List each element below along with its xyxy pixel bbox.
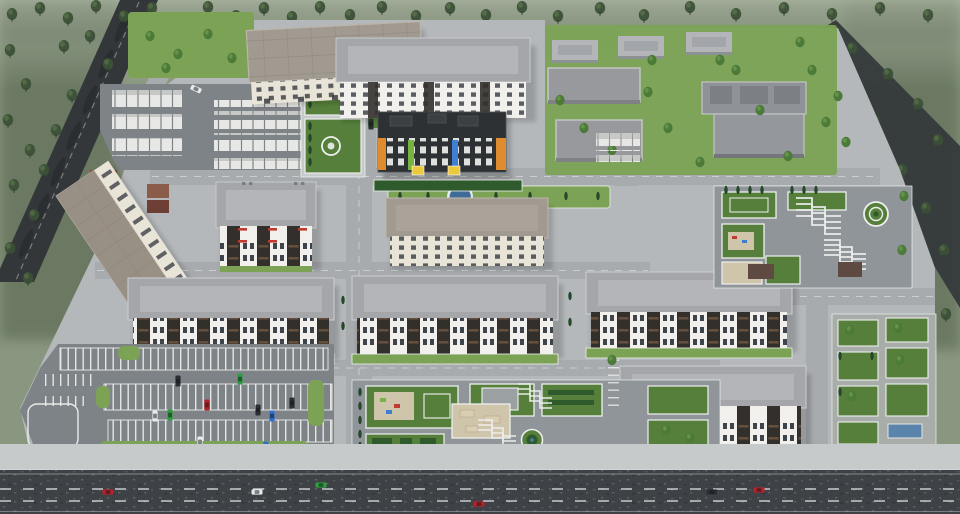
car-dark xyxy=(707,489,718,494)
building-block-e xyxy=(216,182,321,272)
car-green xyxy=(316,482,327,487)
car-dark xyxy=(289,398,294,409)
nw-lawn xyxy=(128,12,254,78)
school-main-building xyxy=(702,82,806,158)
school-campus xyxy=(545,25,851,175)
building-block-b xyxy=(336,38,536,122)
render-canvas: Aerial 3D render of a residential comple… xyxy=(0,0,960,514)
car-blue xyxy=(269,411,274,422)
car-red xyxy=(204,400,209,411)
park-northeast xyxy=(714,186,912,288)
car-red xyxy=(474,501,485,506)
main-road-south xyxy=(0,444,960,514)
car-green xyxy=(167,410,172,421)
entrance-canopy xyxy=(412,166,424,175)
car-green xyxy=(237,374,242,385)
building-block-g2 xyxy=(352,276,563,364)
hedge-strip xyxy=(374,180,522,191)
aerial-masterplan-render: Aerial 3D render of a residential comple… xyxy=(0,0,960,514)
car-red xyxy=(103,489,114,494)
car-white xyxy=(152,411,157,422)
car-white xyxy=(252,489,263,494)
car-red xyxy=(754,487,765,492)
playground xyxy=(728,232,754,250)
car-dark xyxy=(368,119,373,130)
parking-lot-southwest xyxy=(20,344,334,453)
entrance-canopy xyxy=(448,166,460,175)
pergola xyxy=(888,424,922,438)
garden-southeast xyxy=(832,314,936,450)
car-dark xyxy=(175,376,180,387)
building-block-f xyxy=(386,198,553,270)
car-dark xyxy=(255,405,260,416)
